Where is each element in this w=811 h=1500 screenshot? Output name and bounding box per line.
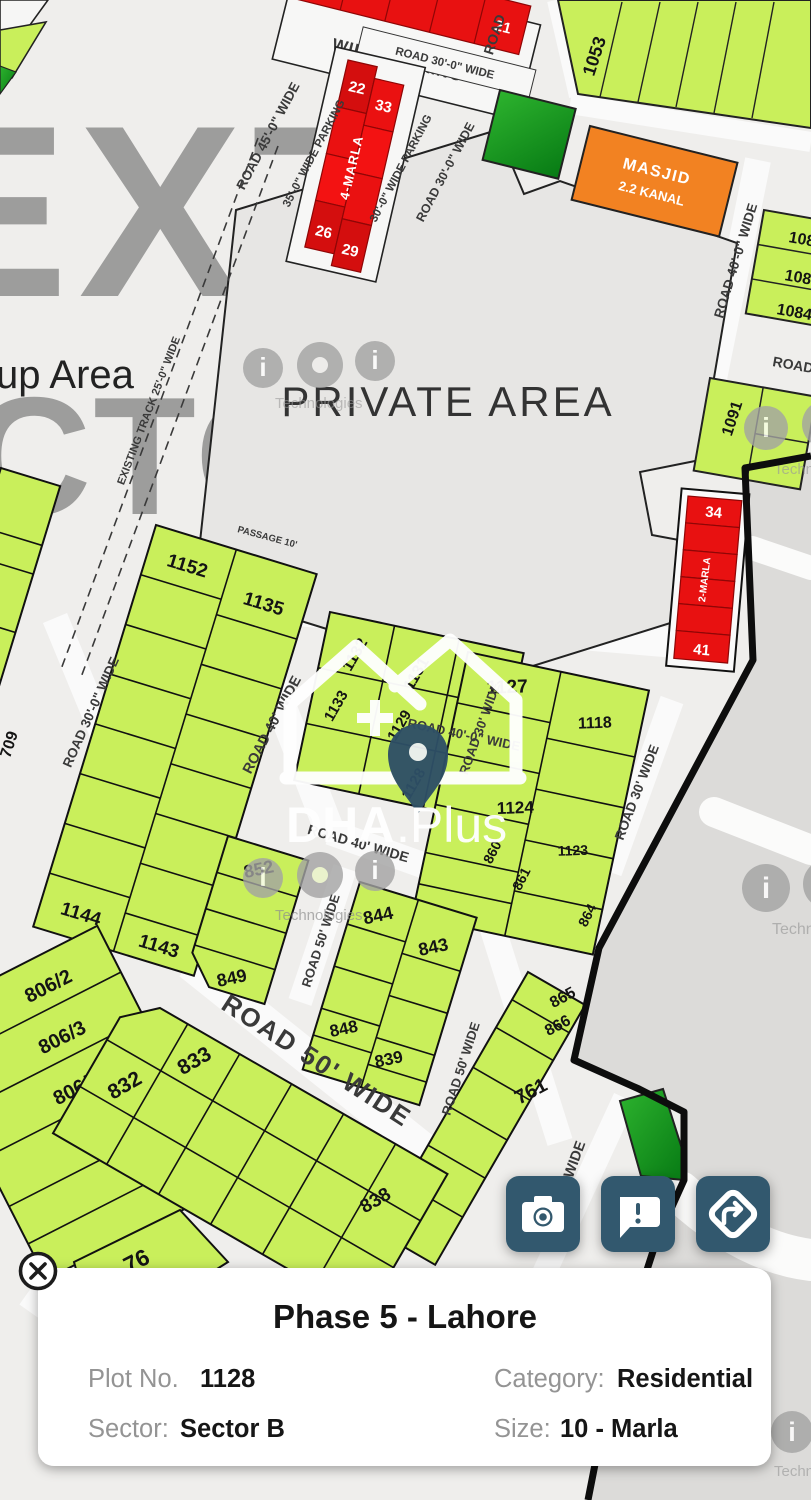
up-area-label: up Area (0, 353, 135, 397)
svg-text:i: i (762, 872, 770, 905)
svg-text:Technologies: Technologies (772, 921, 811, 938)
category-value: Residential (617, 1365, 753, 1393)
svg-text:Technologies: Technologies (275, 907, 363, 924)
size-label: Size: (494, 1415, 551, 1443)
directions-button[interactable] (696, 1176, 770, 1252)
svg-text:i: i (788, 1417, 796, 1447)
card-title: Phase 5 - Lahore (273, 1298, 537, 1335)
report-button[interactable] (601, 1176, 675, 1252)
dha-plus-map-screen: EXT CTOR PRIVATE AREA EXISTING TRACK 25'… (0, 0, 811, 1500)
sector-value: Sector B (180, 1415, 285, 1443)
plot-34: 34 (705, 504, 724, 522)
plot-map[interactable]: EXT CTOR PRIVATE AREA EXISTING TRACK 25'… (0, 0, 811, 1500)
plot-no-value: 1128 (200, 1365, 255, 1393)
svg-text:i: i (259, 352, 266, 382)
plot-41: 41 (693, 641, 711, 659)
watermark-ioi-5: i Technologies (771, 1411, 811, 1480)
plot-1118: 1118 (578, 714, 613, 732)
svg-text:i: i (371, 345, 378, 375)
action-buttons (506, 1176, 770, 1252)
close-card-button[interactable] (21, 1254, 56, 1289)
sector-label: Sector: (88, 1415, 169, 1443)
plus-text: .Plus (396, 797, 507, 853)
size-value: 10 - Marla (560, 1415, 678, 1443)
svg-text:i: i (259, 862, 266, 892)
svg-text:i: i (762, 412, 770, 443)
plot-no-label: Plot No. (88, 1365, 179, 1393)
svg-text:i: i (371, 855, 378, 885)
svg-text:Technologies: Technologies (275, 395, 363, 412)
plot-info-card: Phase 5 - Lahore Plot No. 1128 Category:… (38, 1268, 771, 1466)
category-label: Category: (494, 1365, 605, 1393)
dha-text: DHA (286, 797, 394, 853)
svg-text:Technologies: Technologies (774, 1463, 811, 1480)
camera-button[interactable] (506, 1176, 580, 1252)
plot-1123: 1123 (557, 842, 588, 859)
block-2-marla[interactable]: 34 41 2-MARLA (666, 488, 749, 671)
